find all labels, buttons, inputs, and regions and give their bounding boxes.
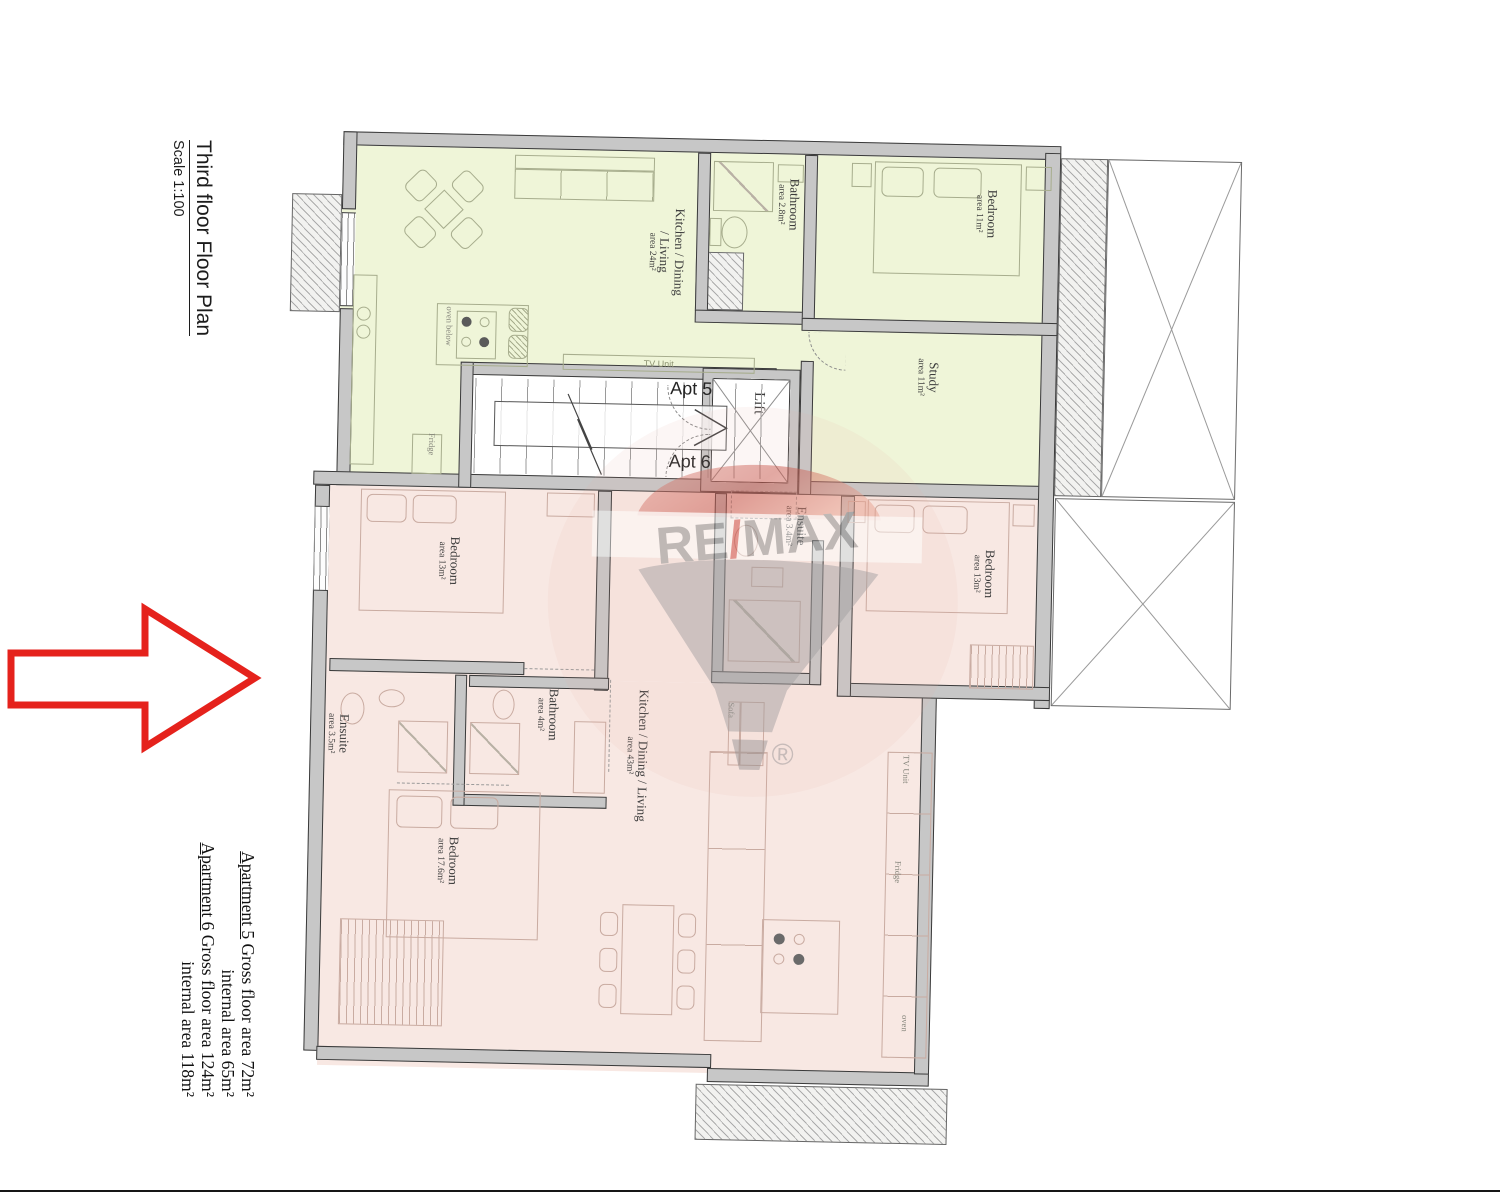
pillow bbox=[881, 166, 924, 197]
terrace-mid-right bbox=[1051, 498, 1235, 710]
chair bbox=[676, 985, 694, 1009]
room-label-apt5-kitchen: Kitchen / Dining / Living area 24m² bbox=[645, 206, 687, 299]
pillow bbox=[366, 494, 407, 523]
shower bbox=[713, 161, 774, 212]
apt5-area-line: Apartment 5 Gross floor area 72m² bbox=[238, 782, 258, 1097]
wardrobe bbox=[338, 918, 444, 1026]
room-label-apt6-bathroom: Bathroom area 4m² bbox=[534, 688, 561, 741]
window bbox=[313, 506, 330, 591]
stool bbox=[508, 335, 528, 359]
wall bbox=[342, 131, 358, 209]
toilet bbox=[709, 218, 722, 246]
dining-table bbox=[620, 904, 674, 1015]
room-label-apt5-bedroom: Bedroom area 11m² bbox=[973, 189, 1000, 238]
remax-watermark: RE/MAX ® bbox=[559, 428, 946, 796]
room-label-apt5-bathroom: Bathroom area 2.8m² bbox=[775, 178, 802, 231]
chair bbox=[677, 949, 695, 973]
pillow bbox=[450, 797, 499, 830]
chair bbox=[598, 984, 616, 1008]
sofa bbox=[514, 169, 655, 202]
balcony-top-left bbox=[290, 193, 342, 312]
kitchen-counter bbox=[350, 274, 378, 464]
stool bbox=[508, 308, 528, 332]
room-label-apt5-study: Study area 11m² bbox=[914, 358, 941, 396]
room-label-apt6-bedroom2: Bedroom area 13m² bbox=[970, 549, 997, 598]
terrace-top-right bbox=[1101, 159, 1242, 500]
sheet-border-bottom bbox=[0, 1190, 1500, 1192]
apt6-internal-line: internal area 118m² bbox=[178, 782, 198, 1097]
wall bbox=[695, 310, 807, 325]
fridge-label: Fridge bbox=[427, 433, 437, 455]
shower bbox=[469, 722, 520, 775]
balcony-bottom bbox=[695, 1084, 948, 1145]
floor-plan-sheet: Third floor Floor Plan Scale 1:100 Apart… bbox=[0, 0, 1500, 1200]
pillow bbox=[396, 795, 443, 828]
oven-label: oven bbox=[900, 1015, 910, 1032]
shower bbox=[397, 720, 448, 773]
room-label-apt6-bedroom3: Bedroom area 17.6m² bbox=[434, 836, 461, 885]
title-block: Third floor Floor Plan Scale 1:100 bbox=[170, 140, 215, 400]
page-title: Third floor Floor Plan bbox=[189, 140, 215, 336]
pillow bbox=[412, 495, 457, 524]
red-arrow-icon bbox=[5, 595, 267, 763]
scale-label: Scale 1:100 bbox=[170, 140, 186, 400]
side-table bbox=[1012, 504, 1034, 526]
chair bbox=[600, 912, 618, 936]
registered-mark: ® bbox=[771, 738, 794, 771]
apt6-area-line: Apartment 6 Gross floor area 124m² bbox=[198, 782, 218, 1097]
room-label-apt6-bedroom1: Bedroom area 13m² bbox=[435, 536, 462, 585]
side-table bbox=[852, 163, 872, 187]
chair bbox=[678, 913, 696, 937]
chair bbox=[599, 948, 617, 972]
apt5-internal-line: internal area 65m² bbox=[218, 782, 238, 1097]
room-label-apt6-ensuite2: Ensuite area 3.5m² bbox=[325, 713, 352, 754]
floor-plan: Lift Apt 5 Apt 6 bbox=[270, 125, 1251, 1155]
fridge-label: Fridge bbox=[893, 861, 903, 883]
counter-right bbox=[881, 752, 932, 1059]
side-table bbox=[1025, 166, 1051, 191]
hatched-strip-right bbox=[1054, 158, 1108, 497]
oven-below-label: oven below bbox=[444, 306, 455, 346]
area-summary: Apartment 5 Gross floor area 72m² intern… bbox=[178, 782, 258, 1097]
wardrobe bbox=[969, 644, 1034, 689]
